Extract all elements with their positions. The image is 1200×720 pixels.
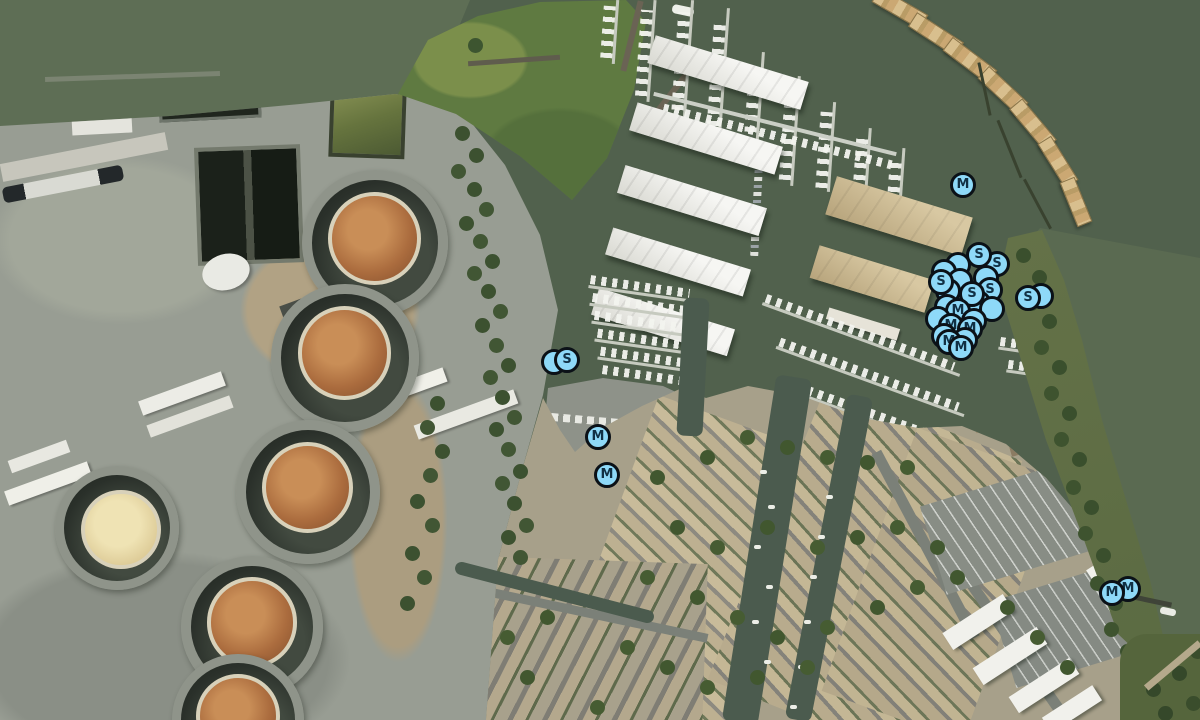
- markers-layer: MSMMSSSSSMMMMMSMM: [0, 0, 1200, 720]
- map-marker-m[interactable]: M: [950, 172, 976, 198]
- map-marker-s[interactable]: S: [966, 242, 992, 268]
- map-marker-s[interactable]: S: [928, 269, 954, 295]
- map-marker-m[interactable]: M: [585, 424, 611, 450]
- map-marker-m[interactable]: M: [1099, 580, 1125, 606]
- map-marker-s[interactable]: S: [554, 347, 580, 373]
- satellite-map[interactable]: MSMMSSSSSMMMMMSMM: [0, 0, 1200, 720]
- map-marker-m[interactable]: M: [594, 462, 620, 488]
- map-marker-s[interactable]: S: [1015, 285, 1041, 311]
- map-marker-m[interactable]: M: [948, 335, 974, 361]
